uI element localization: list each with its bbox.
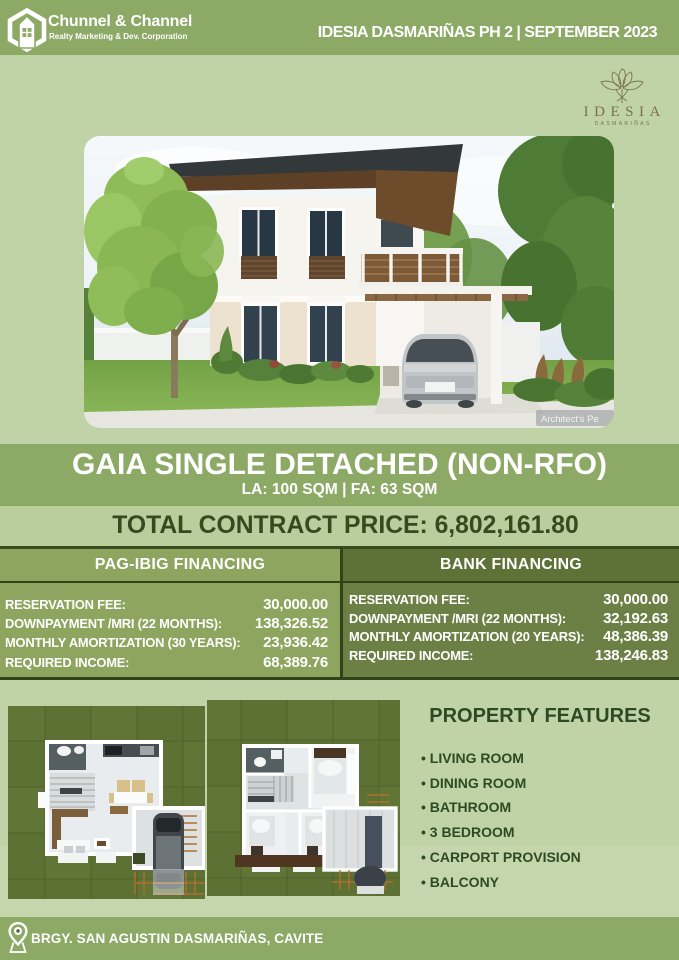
svg-text:Architect's Pe: Architect's Pe xyxy=(541,414,599,425)
